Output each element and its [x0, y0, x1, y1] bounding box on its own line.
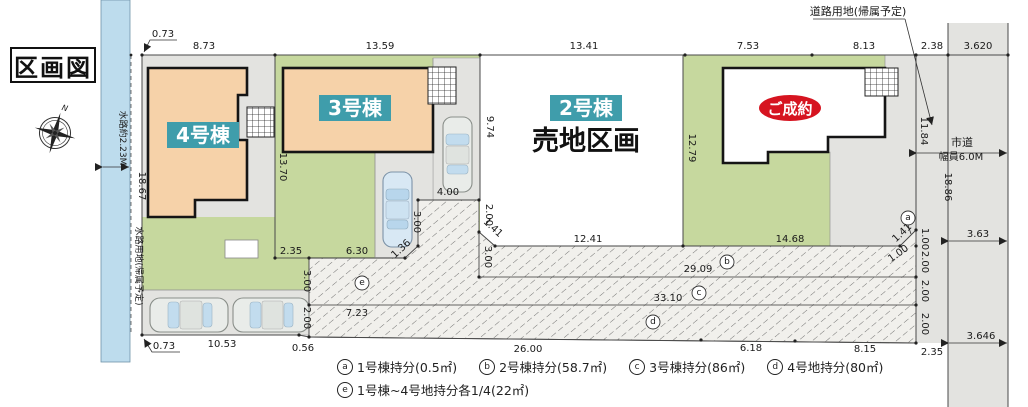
lot2-label: 2号棟 [559, 96, 614, 120]
legend-label-e: 1号棟~4号地持分各1/4(22㎡) [357, 380, 529, 399]
dim-strip-c: 33.10 [654, 293, 683, 304]
dim-top-offset: 0.73 [152, 29, 174, 40]
waterway [101, 0, 131, 362]
dim-seg-c: 2.00 [919, 280, 930, 302]
share-mark-b: b [724, 257, 730, 267]
compass-icon: N [29, 98, 83, 159]
dim-top-road: 3.620 [964, 41, 993, 52]
plot-plan: 4号棟 3号棟 2号棟 売地区画 ご成約 a b [0, 0, 1028, 407]
dim-right-upper: 11.84 [918, 117, 929, 146]
dim-boundary-2-1: 12.79 [686, 134, 697, 163]
road-land-label: 道路用地(帰属予定) [810, 4, 907, 18]
dim-bottom-parking: 10.53 [208, 339, 237, 350]
dim-bottom-offset: 0.73 [153, 341, 175, 352]
waterway-land-label: 水路用地(帰属予定) [133, 226, 145, 305]
legend-item-e: e 1号棟~4号地持分各1/4(22㎡) [337, 380, 529, 399]
dim-bottom-mid: 26.00 [514, 344, 543, 355]
dim-top-road-strip: 2.38 [921, 41, 943, 52]
dim-strip-b: 29.09 [684, 264, 713, 275]
share-mark-c: c [697, 288, 702, 298]
dim-e-left-a: 3.00 [301, 270, 312, 292]
legend-item-d: d 4号地持分(80㎡) [767, 357, 883, 376]
legend-symbol-d: d [767, 359, 783, 375]
dim-strip-e: 7.23 [346, 308, 368, 319]
car-driveway-white [443, 117, 472, 192]
legend-row-1: a 1号棟持分(0.5㎡) b 2号棟持分(58.7㎡) c 3号棟持分(86㎡… [337, 357, 905, 376]
dim-top-lot4: 8.73 [193, 41, 215, 52]
city-road-label: 市道 [951, 135, 973, 149]
dim-conn-top: 4.00 [437, 187, 459, 198]
legend-label-c: 3号棟持分(86㎡) [649, 357, 745, 376]
car-driveway-blue [383, 172, 412, 247]
legend: a 1号棟持分(0.5㎡) b 2号棟持分(58.7㎡) c 3号棟持分(86㎡… [337, 357, 905, 403]
dim-top-lot2: 13.41 [570, 41, 599, 52]
lot3-label: 3号棟 [328, 96, 383, 120]
dim-road-w-mid: 3.63 [967, 229, 989, 240]
entrance-step [225, 240, 258, 258]
dim-top-lot3: 13.59 [366, 41, 395, 52]
sold-label: ご成約 [767, 100, 812, 118]
dim-left-edge: 18.67 [136, 172, 147, 201]
compass-north-label: N [61, 103, 69, 113]
dim-lot2-left: 9.74 [484, 116, 495, 138]
legend-item-c: c 3号棟持分(86㎡) [629, 357, 745, 376]
waterway-width-label: 水路約2.23M [117, 111, 129, 166]
road-width-label: 幅員6.0M [939, 150, 984, 163]
dim-road-w-bottom: 3.646 [967, 331, 996, 342]
legend-label-a: 1号棟持分(0.5㎡) [357, 357, 457, 376]
dim-e-left-b: 2.00 [301, 307, 312, 329]
dim-top-lot1a: 7.53 [737, 41, 759, 52]
legend-symbol-a: a [337, 359, 353, 375]
legend-symbol-e: e [337, 382, 353, 398]
page-title: 区画図 [10, 47, 96, 83]
dim-seg-b: 2.00 [919, 251, 930, 273]
dim-top-lot1b: 8.13 [853, 41, 875, 52]
dim-chamfer-v: 1.00 [919, 228, 930, 250]
dim-boundary-4-3: 13.70 [277, 153, 288, 182]
legend-item-b: b 2号棟持分(58.7㎡) [479, 357, 607, 376]
share-mark-d: d [650, 317, 656, 327]
legend-symbol-c: c [629, 359, 645, 375]
dim-conn-left: 3.00 [411, 211, 422, 233]
lot4-label: 4号棟 [176, 123, 231, 147]
share-mark-e: e [359, 278, 365, 288]
dim-lot1-bottom: 14.68 [776, 234, 805, 245]
dim-bottom-road-strip: 2.35 [921, 347, 943, 358]
legend-symbol-b: b [479, 359, 495, 375]
car-parked-1 [150, 298, 228, 332]
dim-seg-d: 2.00 [919, 313, 930, 335]
legend-label-b: 2号棟持分(58.7㎡) [499, 357, 607, 376]
plot-plan-svg: 4号棟 3号棟 2号棟 売地区画 ご成約 a b [0, 0, 1028, 407]
dim-lot2-bottom: 12.41 [574, 234, 603, 245]
car-parked-2 [233, 298, 309, 332]
balcony-3 [428, 67, 456, 104]
legend-item-a: a 1号棟持分(0.5㎡) [337, 357, 457, 376]
dim-conn-right-b: 3.00 [482, 246, 493, 268]
balcony-4 [247, 107, 274, 137]
dim-lot3-bottom-a: 2.35 [280, 246, 302, 257]
dim-lot3-bottom-b: 6.30 [346, 246, 368, 257]
legend-row-2: e 1号棟~4号地持分各1/4(22㎡) [337, 380, 905, 399]
dim-road-edge: 18.86 [942, 173, 953, 202]
lot2-status-label: 売地区画 [532, 126, 640, 157]
dim-bottom-jog: 0.56 [292, 343, 314, 354]
dim-bottom-d2: 8.15 [854, 344, 876, 355]
dim-bottom-d1: 6.18 [740, 343, 762, 354]
top-offset-leader [144, 40, 177, 52]
balcony-1 [865, 68, 898, 96]
legend-label-d: 4号地持分(80㎡) [787, 357, 883, 376]
